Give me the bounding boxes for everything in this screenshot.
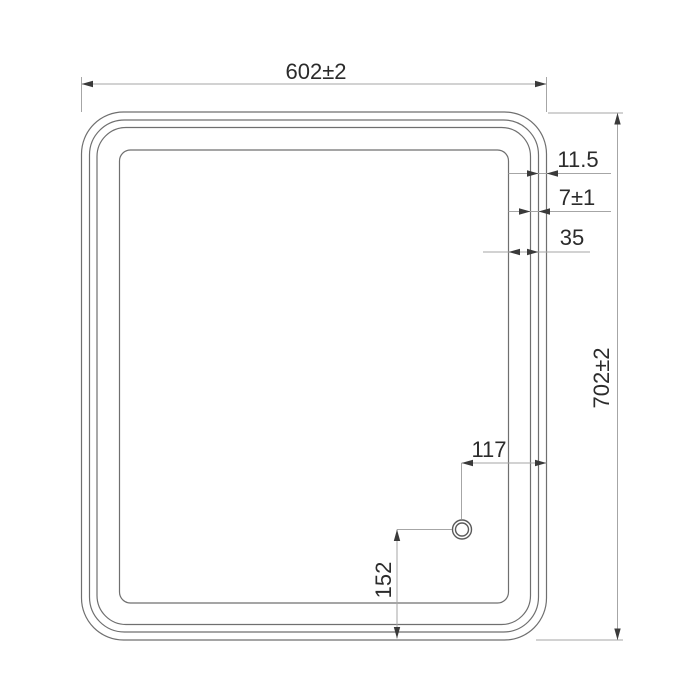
label-frame-total: 35 bbox=[560, 225, 584, 250]
led-band-arrow-left bbox=[519, 208, 531, 214]
mirror-frame-line-3 bbox=[97, 128, 531, 625]
height-arrow-top bbox=[614, 113, 620, 125]
frame-total-arrow-left bbox=[509, 249, 521, 255]
mirror-frame-line-2 bbox=[90, 120, 539, 632]
sensor-inner-circle bbox=[456, 523, 469, 536]
mirror-dimension-drawing: 602±2 702±2 11.5 7±1 35 117 152 bbox=[0, 0, 700, 700]
sensor bbox=[453, 520, 472, 539]
mirror-outer-edge bbox=[82, 112, 547, 640]
edge-band-arrow-left bbox=[527, 170, 539, 176]
technical-drawing-canvas: 602±2 702±2 11.5 7±1 35 117 152 bbox=[0, 0, 700, 700]
frame-total-arrow-right bbox=[527, 249, 539, 255]
label-led-band: 7±1 bbox=[559, 185, 596, 210]
width-arrow-right bbox=[535, 81, 547, 87]
mirror-inner-panel bbox=[120, 150, 509, 603]
label-sensor-y: 152 bbox=[371, 562, 396, 599]
label-edge-band: 11.5 bbox=[557, 147, 598, 172]
edge-band-arrow-right bbox=[547, 170, 559, 176]
product-outline bbox=[82, 112, 547, 640]
width-arrow-left bbox=[82, 81, 94, 87]
sensor-x-arrow-right bbox=[535, 460, 547, 466]
label-sensor-x: 117 bbox=[471, 437, 506, 462]
label-overall-width: 602±2 bbox=[285, 59, 346, 84]
dimension-lines bbox=[82, 77, 624, 640]
height-arrow-bottom bbox=[614, 629, 620, 641]
label-overall-height: 702±2 bbox=[589, 347, 614, 408]
led-band-arrow-right bbox=[539, 208, 551, 214]
dimension-labels: 602±2 702±2 11.5 7±1 35 117 152 bbox=[285, 59, 614, 598]
sensor-y-arrow-bottom bbox=[394, 627, 400, 639]
sensor-y-arrow-top bbox=[394, 530, 400, 542]
dimension-arrows bbox=[82, 81, 621, 640]
